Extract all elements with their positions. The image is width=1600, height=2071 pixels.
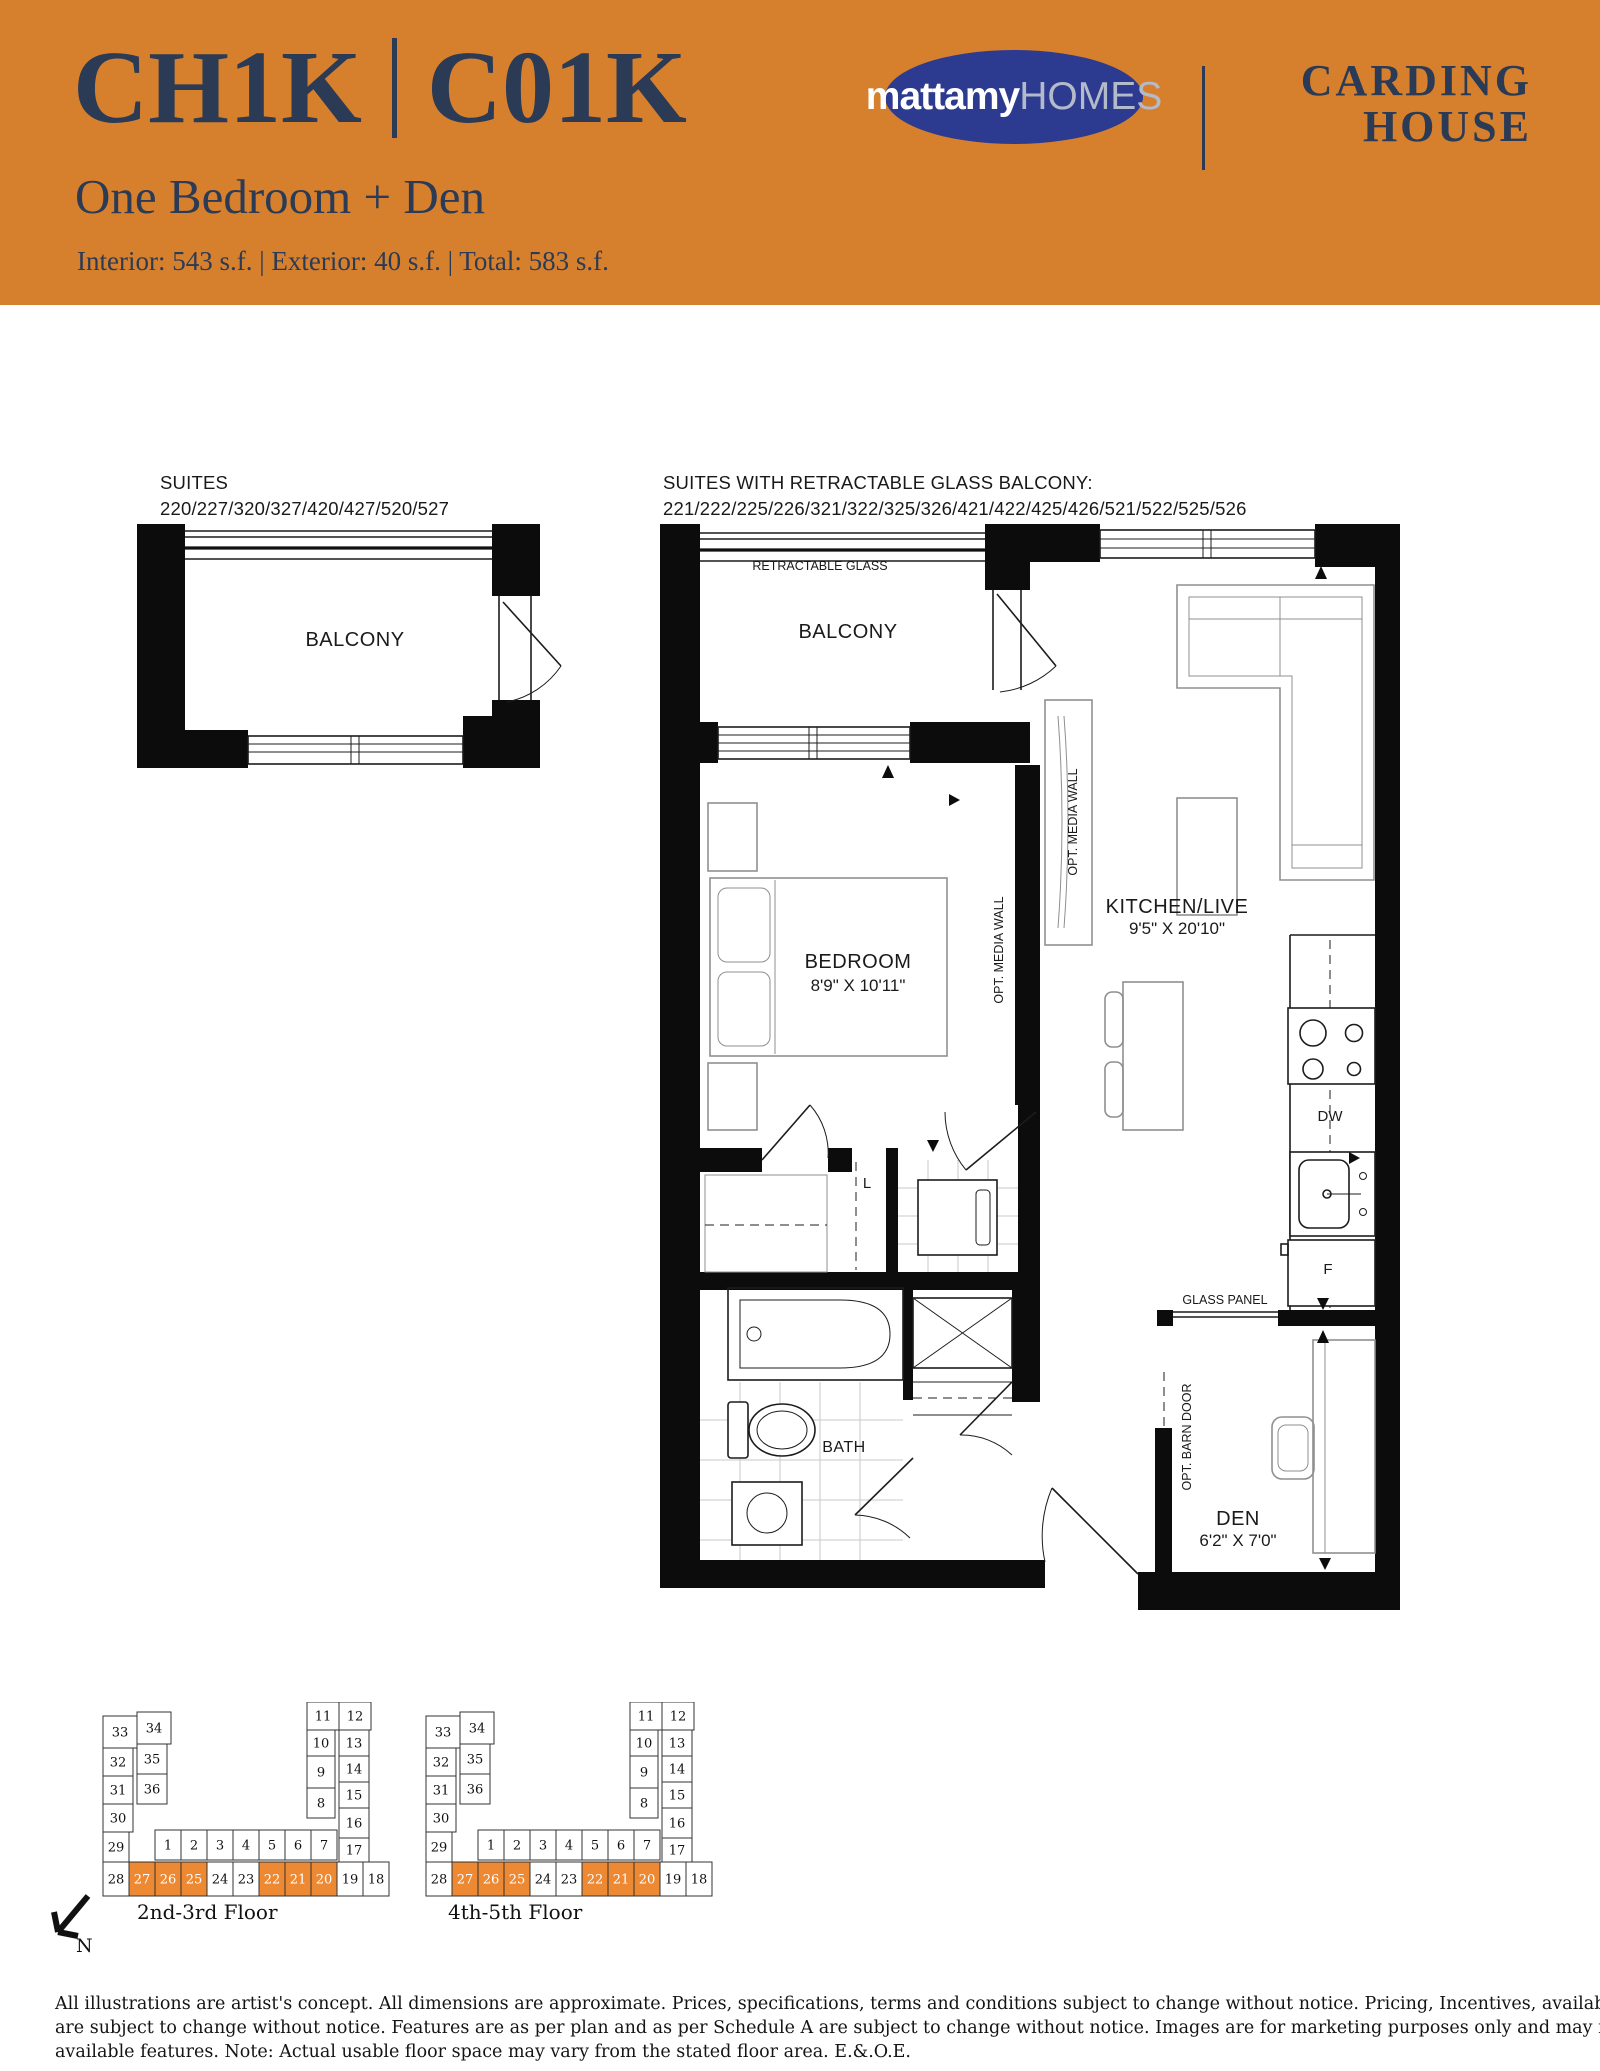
- keyplan-unit-number-31: 31: [433, 1784, 450, 1799]
- keyplan-unit-number-25: 25: [186, 1873, 203, 1888]
- header-divider-line: [1202, 66, 1205, 170]
- mattamy-homes-logo: mattamyHOMES: [885, 50, 1143, 144]
- logo-text-mattamy: mattamy: [866, 75, 1019, 119]
- keyplan-unit-number-16: 16: [346, 1817, 363, 1832]
- project-name-line1: CARDING: [1230, 58, 1532, 104]
- opt-media-wall-bedroom-label: OPT. MEDIA WALL: [992, 896, 1006, 1003]
- glass-panel-line: [1173, 1312, 1278, 1317]
- keyplan-unit-number-33: 33: [112, 1726, 129, 1741]
- unit-type-title: One Bedroom + Den: [75, 168, 485, 225]
- keyplan-unit-number-30: 30: [433, 1812, 450, 1827]
- living-window: [1100, 530, 1315, 558]
- toilet: [728, 1402, 815, 1458]
- kitchen-live-dims: 9'5" X 20'10": [1129, 919, 1225, 938]
- dishwasher-label: DW: [1318, 1108, 1344, 1125]
- keyplan-unit-number-28: 28: [431, 1873, 448, 1888]
- keyplan-unit-number-24: 24: [535, 1873, 552, 1888]
- keyplan-unit-number-31: 31: [110, 1784, 127, 1799]
- keyplan-unit-number-18: 18: [691, 1873, 708, 1888]
- keyplan-2nd-3rd-floor: 3334323531363029123456728272625242322212…: [95, 1702, 395, 1898]
- keyplan-unit-number-2: 2: [513, 1839, 521, 1854]
- keyplan-unit-number-12: 12: [347, 1710, 364, 1725]
- model-codes: CH1K C01K: [73, 36, 687, 140]
- keyplan-unit-number-21: 21: [290, 1873, 307, 1888]
- keyplan-unit-number-4: 4: [242, 1839, 250, 1854]
- bedroom-closet: [705, 1175, 827, 1272]
- retractable-glass-label: RETRACTABLE GLASS: [752, 559, 887, 573]
- keyplan-unit-number-8: 8: [640, 1797, 648, 1812]
- retractable-suites-title: SUITES WITH RETRACTABLE GLASS BALCONY:: [663, 470, 1247, 496]
- keyplan-unit-number-23: 23: [561, 1873, 578, 1888]
- keyplan-unit-number-27: 27: [457, 1873, 474, 1888]
- keyplan-unit-number-34: 34: [469, 1722, 486, 1737]
- keyplan-unit-number-19: 19: [342, 1873, 359, 1888]
- model-code-primary: CH1K: [73, 36, 362, 140]
- bathtub: [728, 1288, 903, 1380]
- kitchen-island: [1105, 982, 1183, 1130]
- keyplan-unit-number-32: 32: [110, 1756, 127, 1771]
- keyplan-unit-number-26: 26: [160, 1873, 177, 1888]
- north-arrow-icon: N: [42, 1886, 102, 1958]
- keyplan-unit-number-30: 30: [110, 1812, 127, 1827]
- keyplan-unit-number-22: 22: [264, 1873, 281, 1888]
- floorplan-brochure-page: CH1K C01K One Bedroom + Den Interior: 54…: [0, 0, 1600, 2071]
- keyplan-unit-number-10: 10: [313, 1737, 330, 1752]
- keyplan-unit-number-20: 20: [639, 1873, 656, 1888]
- glass-panel-label: GLASS PANEL: [1182, 1293, 1267, 1307]
- logo-text-homes: HOMES: [1019, 75, 1162, 119]
- keyplan-unit-number-26: 26: [483, 1873, 500, 1888]
- keyplan-unit-number-24: 24: [212, 1873, 229, 1888]
- project-name: CARDING HOUSE: [1230, 58, 1532, 150]
- sectional-sofa: [1177, 585, 1374, 880]
- laundry-label: L: [863, 1175, 871, 1192]
- main-floorplan: RETRACTABLE GLASS BALCONY BEDROOM 8'9" X…: [660, 520, 1400, 1610]
- model-code-secondary: C01K: [427, 36, 687, 140]
- keyplan-unit-number-4: 4: [565, 1839, 573, 1854]
- keyplan-unit-number-6: 6: [617, 1839, 625, 1854]
- keyplan-unit-number-33: 33: [435, 1726, 452, 1741]
- entry-door: [1042, 1488, 1138, 1574]
- keyplan-unit-number-22: 22: [587, 1873, 604, 1888]
- retractable-suites-numbers: 221/222/225/226/321/322/325/326/421/422/…: [663, 496, 1247, 522]
- keyplan-unit-number-36: 36: [144, 1783, 161, 1798]
- den-dims: 6'2" X 7'0": [1199, 1531, 1276, 1550]
- bedroom-label: BEDROOM: [805, 951, 912, 973]
- keyplan-unit-number-3: 3: [216, 1839, 224, 1854]
- small-plan-balcony-label: BALCONY: [305, 629, 404, 651]
- keyplan-unit-number-16: 16: [669, 1817, 686, 1832]
- disclaimer-line-1: All illustrations are artist's concept. …: [55, 1993, 1560, 2017]
- keyplan-unit-number-14: 14: [346, 1763, 363, 1778]
- keyplan-unit-number-32: 32: [433, 1756, 450, 1771]
- disclaimer-line-2: are subject to change without notice. Fe…: [55, 2017, 1560, 2041]
- kitchen-live-label: KITCHEN/LIVE: [1106, 896, 1249, 918]
- keyplan-unit-number-7: 7: [320, 1839, 328, 1854]
- bath-label: BATH: [822, 1439, 865, 1456]
- keyplan-unit-number-18: 18: [368, 1873, 385, 1888]
- north-label: N: [76, 1935, 93, 1957]
- floor-label-4th-5th: 4th-5th Floor: [448, 1900, 582, 1924]
- keyplan-unit-number-29: 29: [108, 1841, 125, 1856]
- keyplan-unit-number-1: 1: [164, 1839, 172, 1854]
- keyplan-unit-number-13: 13: [346, 1737, 363, 1752]
- keyplan-unit-number-11: 11: [315, 1710, 332, 1725]
- stove: [1288, 1008, 1375, 1084]
- bath-vanity: [732, 1482, 802, 1545]
- keyplan-unit-number-3: 3: [539, 1839, 547, 1854]
- keyplan-unit-number-29: 29: [431, 1841, 448, 1856]
- keyplan-4th-5th-floor: 3334323531363029123456728272625242322212…: [418, 1702, 718, 1898]
- keyplan-unit-number-10: 10: [636, 1737, 653, 1752]
- retractable-suites-label: SUITES WITH RETRACTABLE GLASS BALCONY: 2…: [663, 470, 1247, 522]
- keyplan-unit-number-7: 7: [643, 1839, 651, 1854]
- keyplan-unit-number-35: 35: [467, 1753, 484, 1768]
- opt-media-wall-living-label: OPT. MEDIA WALL: [1066, 768, 1080, 875]
- project-name-line2: HOUSE: [1230, 104, 1532, 150]
- keyplan-unit-number-19: 19: [665, 1873, 682, 1888]
- model-code-divider: [392, 38, 397, 138]
- keyplan-unit-number-35: 35: [144, 1753, 161, 1768]
- keyplan-unit-number-21: 21: [613, 1873, 630, 1888]
- keyplan-unit-number-17: 17: [669, 1844, 686, 1859]
- disclaimer-line-3: available features. Note: Actual usable …: [55, 2041, 1560, 2065]
- keyplan-unit-number-14: 14: [669, 1763, 686, 1778]
- den-desk: [1272, 1340, 1375, 1553]
- keyplan-unit-number-13: 13: [669, 1737, 686, 1752]
- keyplan-unit-number-9: 9: [317, 1766, 325, 1781]
- keyplan-unit-number-20: 20: [316, 1873, 333, 1888]
- standard-balcony-plan: BALCONY: [137, 518, 567, 778]
- area-summary: Interior: 543 s.f. | Exterior: 40 s.f. |…: [77, 246, 609, 277]
- keyplan-unit-number-23: 23: [238, 1873, 255, 1888]
- keyplan-unit-number-17: 17: [346, 1844, 363, 1859]
- keyplan-unit-number-15: 15: [669, 1789, 686, 1804]
- fridge-label: F: [1323, 1261, 1332, 1278]
- keyplan-unit-number-1: 1: [487, 1839, 495, 1854]
- small-plan-door: [499, 596, 561, 702]
- standard-suites-label: SUITES 220/227/320/327/420/427/520/527: [160, 470, 449, 522]
- keyplan-unit-number-8: 8: [317, 1797, 325, 1812]
- keyplan-unit-number-28: 28: [108, 1873, 125, 1888]
- header-band: CH1K C01K One Bedroom + Den Interior: 54…: [0, 0, 1600, 305]
- disclaimer-text: All illustrations are artist's concept. …: [55, 1993, 1560, 2065]
- bedroom-dims: 8'9" X 10'11": [811, 976, 906, 995]
- keyplan-unit-number-36: 36: [467, 1783, 484, 1798]
- keyplan-unit-number-5: 5: [268, 1839, 276, 1854]
- keyplan-unit-number-9: 9: [640, 1766, 648, 1781]
- keyplan-unit-number-5: 5: [591, 1839, 599, 1854]
- keyplan-unit-number-2: 2: [190, 1839, 198, 1854]
- standard-suites-title: SUITES: [160, 470, 449, 496]
- keyplan-unit-number-12: 12: [670, 1710, 687, 1725]
- washer-dryer: [898, 1160, 1018, 1272]
- balcony-label: BALCONY: [798, 621, 897, 643]
- opt-barn-door-label: OPT. BARN DOOR: [1180, 1384, 1194, 1491]
- balcony-door: [993, 590, 1056, 692]
- floor-label-2nd-3rd: 2nd-3rd Floor: [137, 1900, 278, 1924]
- keyplan-unit-number-34: 34: [146, 1722, 163, 1737]
- keyplan-unit-number-27: 27: [134, 1873, 151, 1888]
- den-label: DEN: [1216, 1508, 1260, 1530]
- keyplan-unit-number-15: 15: [346, 1789, 363, 1804]
- keyplan-unit-number-6: 6: [294, 1839, 302, 1854]
- keyplan-unit-number-25: 25: [509, 1873, 526, 1888]
- keyplan-unit-number-11: 11: [638, 1710, 655, 1725]
